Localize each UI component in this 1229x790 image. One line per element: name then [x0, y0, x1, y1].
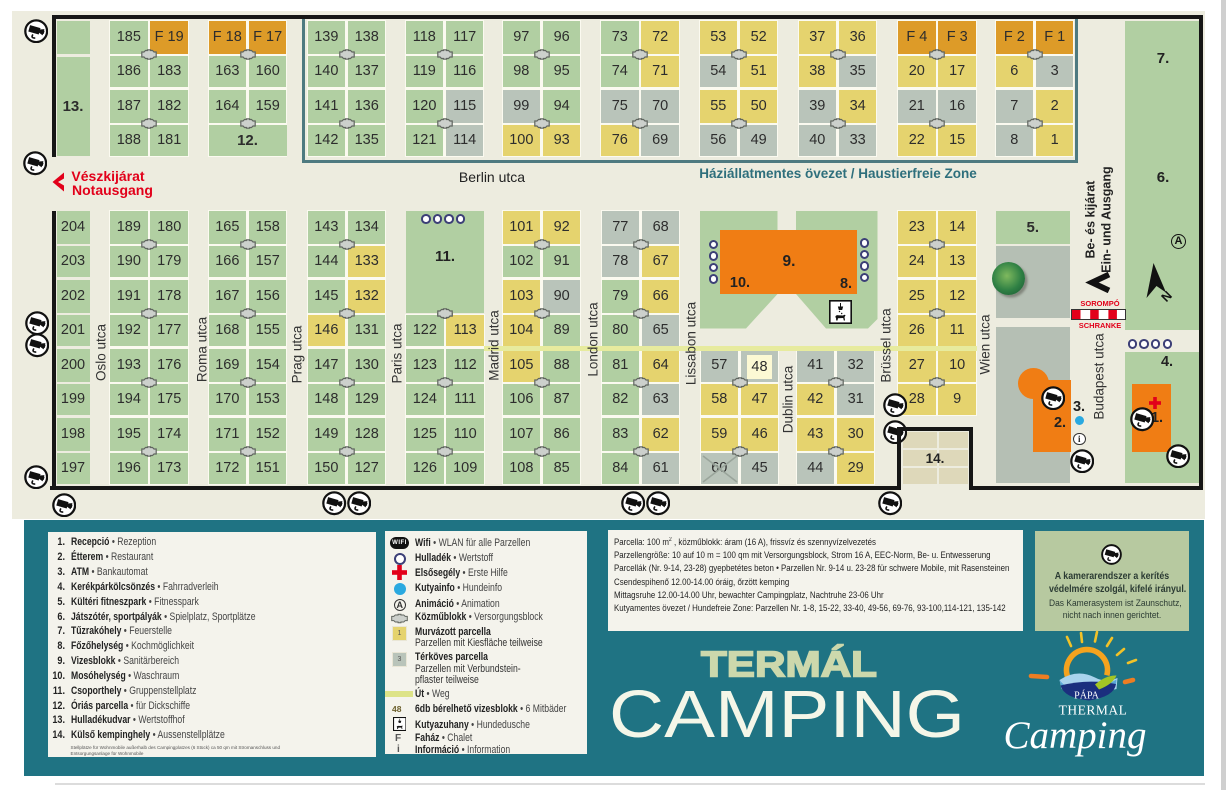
- svg-text:CAMPING: CAMPING: [609, 677, 965, 752]
- svg-text:Camping: Camping: [1003, 714, 1146, 757]
- svg-text:PÁPA: PÁPA: [1074, 690, 1099, 702]
- svg-text:N: N: [1159, 288, 1175, 304]
